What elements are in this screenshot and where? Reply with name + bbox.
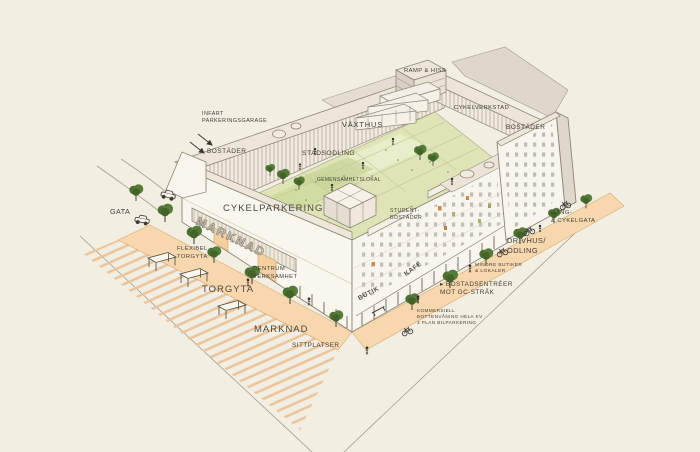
- label-flexibel-torgyta: FLEXIBEL TORGYTA: [177, 246, 208, 261]
- label-gang-cykelgata: GÅNG- & CYKELGATA: [551, 210, 595, 225]
- label-marknad-ground: MARKNAD: [254, 324, 309, 336]
- label-stadsodling: STADSODLING: [302, 150, 355, 159]
- label-gemensamhetslokal: GEMENSAMHETSLOKAL: [317, 177, 381, 184]
- label-cykelparkering: CYKELPARKERING: [223, 203, 323, 215]
- label-bostader-nw: BOSTÄDER: [207, 148, 246, 156]
- label-bostader-ne: BOSTÄDER: [506, 124, 545, 132]
- label-drivhus-odling: DRIVHUS/ ODLING: [507, 236, 546, 255]
- label-mindre-butiker: MINDRE BUTIKER & LOKALER: [475, 263, 522, 275]
- label-torgyta: TORGYTA: [202, 284, 254, 296]
- label-infart-parkeringsgarage: INFART PARKERINGSGARAGE: [202, 111, 267, 125]
- architectural-sketch: INFART PARKERINGSGARAGE BOSTÄDER RAMP & …: [0, 0, 700, 452]
- label-centrum-verksamhet: CENTRUM VERKSAMHET: [253, 266, 297, 281]
- label-bostadsentreer: ▸ BOSTADSENTRÉER MOT GC-STRÅK: [440, 281, 513, 298]
- label-gata: GATA: [110, 207, 130, 216]
- label-kommersiell: KOMMERSIELL BOTTENVÅNING HELA KV 3 PLAN …: [417, 308, 483, 326]
- label-ramp-hiss: RAMP & HISS: [404, 68, 446, 76]
- label-studentbostader: STUDENT- BOSTÄDER: [390, 208, 422, 222]
- label-cykelverkstad: CYKELVERKSTAD: [454, 105, 509, 113]
- sketch-canvas: [0, 0, 700, 452]
- label-sittplatser: SITTPLATSER: [292, 342, 339, 350]
- label-vaxthus: VÄXTHUS: [342, 120, 383, 130]
